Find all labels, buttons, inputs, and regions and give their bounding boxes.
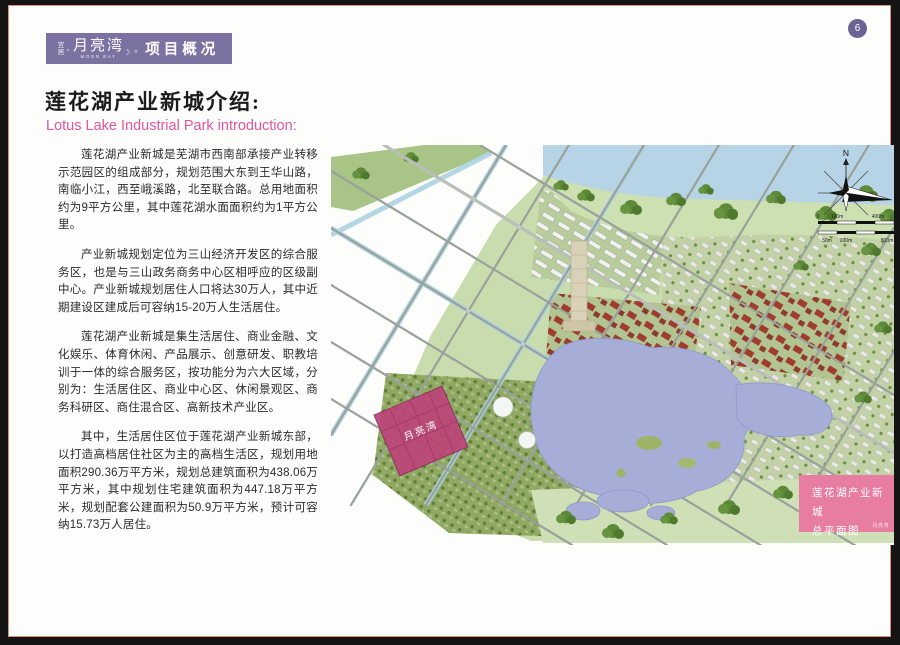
scale-label: 200m: [840, 238, 853, 244]
intro-paragraphs: 莲花湖产业新城是芜湖市西南部承接产业转移示范园区的组成部分，规划范围大东到王华山…: [58, 147, 318, 547]
banner-separator: 。: [134, 42, 143, 55]
paragraph: 莲花湖产业新城是集生活居住、商业金融、文化娱乐、体育休闲、产品展示、创意研发、职…: [58, 329, 318, 417]
brand-name-en: MOON BAY: [81, 54, 117, 59]
map-legend-box: 莲花湖产业新城 总平面图 月亮湾: [799, 475, 894, 532]
scale-label: 100m: [831, 214, 844, 220]
legend-small-label: 月亮湾: [872, 522, 889, 529]
header-banner: 宜居 · 月亮湾 MOON BAY ☽ 。 项目概况: [46, 33, 232, 64]
brochure-page: 宜居 · 月亮湾 MOON BAY ☽ 。 项目概况 6 莲花湖产业新城介绍: …: [8, 5, 891, 637]
section-title: 项目概况: [145, 38, 219, 59]
paragraph: 产业新城规划定位为三山经济开发区的综合服务区，也是与三山政务商务中心区相呼应的区…: [58, 247, 318, 317]
masterplan-map: 月亮湾: [331, 145, 894, 545]
brand-name: 月亮湾: [73, 39, 124, 54]
legend-title-line1: 莲花湖产业新城: [812, 484, 894, 522]
page-subtitle: Lotus Lake Industrial Park introduction:: [46, 118, 297, 134]
page-title: 莲花湖产业新城介绍:: [45, 86, 261, 116]
banner-residence-label: 宜居: [56, 41, 63, 56]
scale-label: 400m: [872, 214, 885, 220]
scale-label: 0: [817, 214, 820, 220]
page-number-badge: 6: [848, 19, 867, 38]
paragraph: 莲花湖产业新城是芜湖市西南部承接产业转移示范园区的组成部分，规划范围大东到王华山…: [58, 147, 318, 235]
scale-label: 800m: [881, 238, 894, 244]
compass-north-label: N: [843, 148, 849, 158]
banner-dot: ·: [66, 42, 70, 56]
brand-logo: 月亮湾 MOON BAY: [73, 39, 124, 59]
paragraph: 其中，生活居住区位于莲花湖产业新城东部，以打造高档居住社区为主的高档生活区，规划…: [58, 429, 318, 535]
crescent-moon-icon: ☽: [123, 48, 130, 57]
scale-label: 50m: [822, 238, 832, 244]
